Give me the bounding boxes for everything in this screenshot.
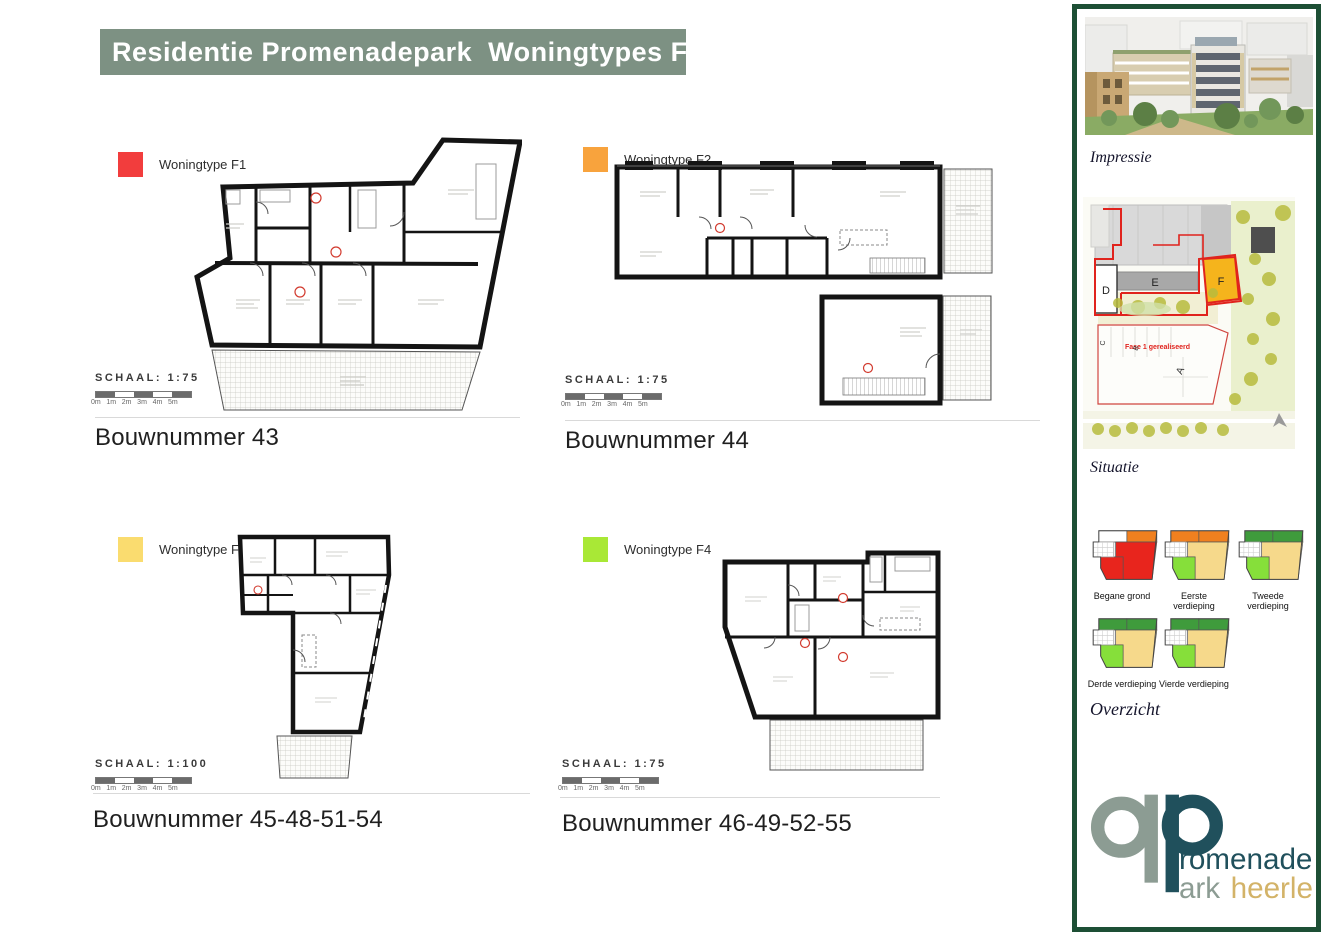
floor-diagram (1233, 527, 1309, 585)
schaal-block-f3: SCHAAL: 1:100 0m1m2m3m4m5m (95, 758, 208, 792)
divider-f2 (565, 420, 1040, 421)
swatch-f4 (583, 537, 608, 562)
terrace-f2 (944, 169, 992, 273)
logo-text-heerlen: heerlen (1231, 872, 1315, 905)
stairs-f2-upper (843, 378, 925, 395)
legend-f3: Woningtype F3 (118, 537, 246, 562)
bouwnummer-f4: Bouwnummer 46-49-52-55 (562, 810, 852, 838)
situatie-label: Situatie (1090, 459, 1139, 477)
terrace-f1 (212, 350, 480, 410)
floor-begane-grond: Begane grond (1087, 527, 1157, 601)
floor-diagram (1087, 527, 1163, 585)
page-title: Residentie Promenadepark Woningtypes F (112, 37, 688, 68)
promenadepark-logo: romenade ark heerlen (1085, 787, 1315, 919)
floor-diagram (1087, 615, 1163, 673)
logo-text-ark: ark (1179, 872, 1220, 905)
schaal-f2: SCHAAL: 1:75 (565, 374, 670, 386)
floorplan-f1 (190, 132, 522, 420)
stairs-f2 (870, 258, 925, 273)
scalebar-f3: 0m1m2m3m4m5m (95, 777, 192, 792)
logo-p-left (1098, 803, 1146, 851)
bouwnummer-f1: Bouwnummer 43 (95, 424, 279, 452)
schaal-f4: SCHAAL: 1:75 (562, 758, 667, 770)
bouwnummer-f2: Bouwnummer 44 (565, 427, 749, 455)
schaal-block-f4: SCHAAL: 1:75 0m1m2m3m4m5m (562, 758, 667, 792)
map-label-d: D (1102, 285, 1110, 297)
divider-f4 (560, 797, 940, 798)
floorplan-f3 (230, 530, 400, 790)
floorplan-f4 (715, 545, 945, 780)
legend-label-f4: Woningtype F4 (624, 542, 711, 557)
floor-label: Eerste verdieping (1159, 591, 1229, 611)
schaal-block-f2: SCHAAL: 1:75 0m1m2m3m4m5m (565, 374, 670, 408)
title-bar: Residentie Promenadepark Woningtypes F (100, 29, 686, 75)
floor-tweede: Tweede verdieping (1233, 527, 1303, 611)
swatch-f3 (118, 537, 143, 562)
divider-f1 (95, 417, 520, 418)
map-label-f: F (1218, 276, 1225, 288)
map-label-c: C (1100, 340, 1107, 345)
schaal-block-f1: SCHAAL: 1:75 0m1m2m3m4m5m (95, 372, 200, 406)
floorplan-f2 (600, 140, 1000, 410)
scalebar-f2: 0m1m2m3m4m5m (565, 393, 662, 408)
overzicht-label: Overzicht (1090, 699, 1160, 720)
bouwnummer-f3: Bouwnummer 45-48-51-54 (93, 806, 383, 834)
swatch-f1 (118, 152, 143, 177)
legend-f4: Woningtype F4 (583, 537, 711, 562)
terrace-f3 (277, 736, 352, 778)
floor-eerste: Eerste verdieping (1159, 527, 1229, 611)
floor-label: Derde verdieping (1087, 679, 1157, 689)
schaal-f3: SCHAAL: 1:100 (95, 758, 208, 770)
floor-vierde: Vierde verdieping (1159, 615, 1229, 689)
floor-label: Vierde verdieping (1159, 679, 1229, 689)
scalebar-f1: 0m1m2m3m4m5m (95, 391, 192, 406)
impressie-label: Impressie (1090, 149, 1152, 167)
terrace-f4 (770, 720, 923, 770)
terrace-f2-upper (943, 296, 991, 400)
schaal-f1: SCHAAL: 1:75 (95, 372, 200, 384)
floor-diagram (1159, 615, 1235, 673)
floor-derde: Derde verdieping (1087, 615, 1157, 689)
sidebar: Impressie (1072, 4, 1321, 932)
map-label-e: E (1151, 277, 1158, 289)
floor-label: Begane grond (1087, 591, 1157, 601)
situatie-map: D E F Fase 1 gerealiseerd A B C (1083, 197, 1295, 449)
divider-f3 (93, 793, 530, 794)
impressie-image (1085, 17, 1313, 135)
scalebar-f4: 0m1m2m3m4m5m (562, 777, 659, 792)
floor-label: Tweede verdieping (1233, 591, 1303, 611)
floor-diagram (1159, 527, 1235, 585)
